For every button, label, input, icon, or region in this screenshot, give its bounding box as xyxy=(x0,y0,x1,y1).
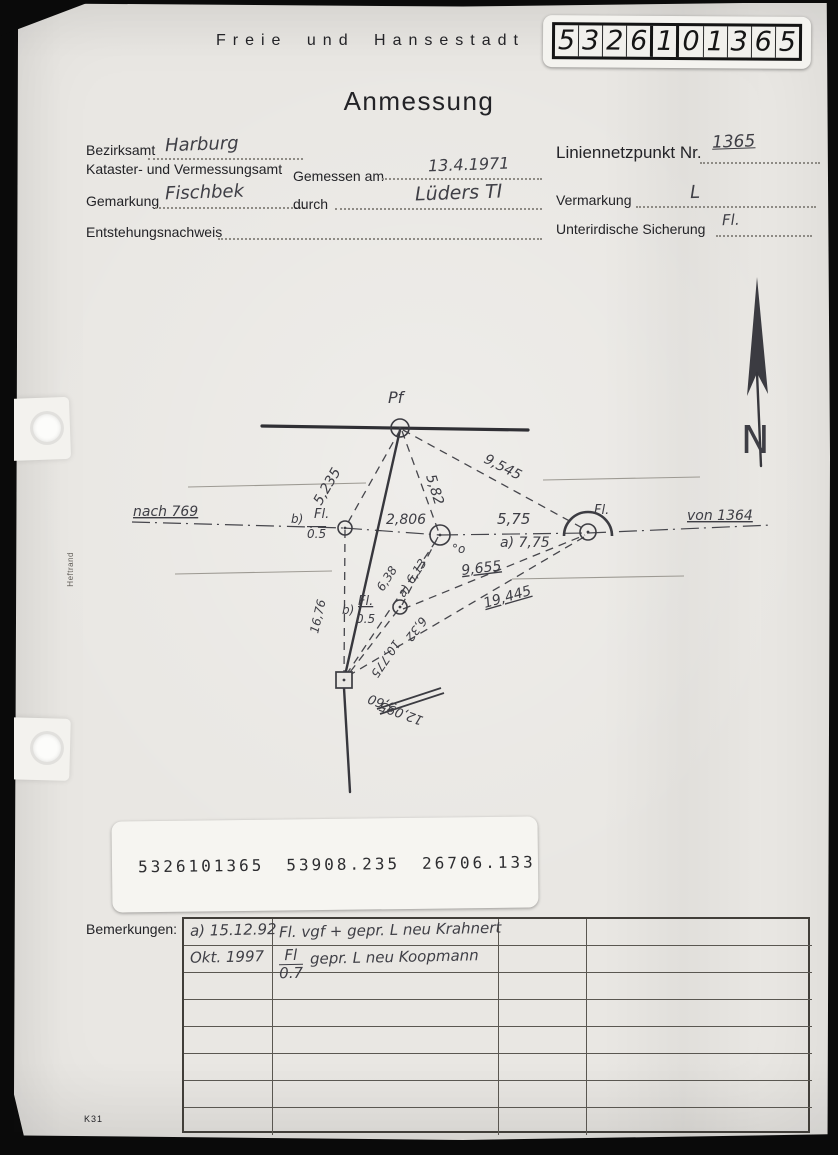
sticker-digit: 3 xyxy=(579,25,603,56)
bemerkungen-cell xyxy=(273,1000,499,1027)
bemerkungen-cell xyxy=(499,1108,587,1135)
bemerkungen-cell xyxy=(273,1054,499,1081)
measurement-label: nach 769 xyxy=(133,504,198,520)
measurement-label: 0.5 xyxy=(307,527,326,541)
measurement-label: °o xyxy=(452,542,465,556)
point-number-sticker: 5326101365 xyxy=(543,15,811,69)
bemerkungen-cell xyxy=(499,1000,587,1027)
measurement-label: 16,76 xyxy=(307,598,328,635)
scan-edge-bottom xyxy=(0,1140,838,1155)
measurement-label: b) xyxy=(291,512,303,526)
entstehungsnachweis-label: Entstehungsnachweis xyxy=(86,224,222,240)
entstehungsnachweis-rule xyxy=(218,226,542,240)
boundary-line xyxy=(344,528,440,535)
survey-point-dot xyxy=(343,679,346,682)
bemerkungen-cell xyxy=(273,1027,499,1054)
bemerkungen-cell xyxy=(499,946,587,973)
point-id: 5326101365 xyxy=(138,856,265,877)
measurement-label: b) xyxy=(342,603,354,617)
measurement-label: 5,82 xyxy=(422,472,446,507)
bezirksamt-label: Bezirksamt xyxy=(86,142,155,158)
vermarkung-value: L xyxy=(690,182,701,203)
survey-point-dot xyxy=(587,531,590,534)
agency-header: Freie und Hansestadt H xyxy=(216,32,563,50)
bemerkungen-cell xyxy=(184,973,273,1000)
bemerkungen-cell xyxy=(499,973,587,1000)
bemerkungen-cell xyxy=(499,1027,587,1054)
north-letter: N xyxy=(741,418,769,462)
coordinate-line: 532610136553908.23526706.133 xyxy=(138,852,558,876)
bemerkung-text: gepr. L neu Koopmann xyxy=(310,946,479,968)
bemerkungen-cell xyxy=(587,1054,812,1081)
sticker-digit: 0 xyxy=(679,26,703,57)
bemerkung-date: Okt. 1997 xyxy=(190,947,264,967)
survey-point-dot xyxy=(344,527,347,530)
heftrand-note: Heftrand xyxy=(66,552,75,587)
bemerkungen-cell xyxy=(273,1081,499,1108)
bemerkungen-cell xyxy=(184,1027,273,1054)
bezirksamt-value: Harburg xyxy=(165,133,239,157)
scan-edge-top xyxy=(0,0,838,3)
amt-label: Kataster- und Vermessungsamt xyxy=(86,161,282,177)
coordinate-x: 53908.235 xyxy=(286,854,400,874)
edge-line xyxy=(175,571,332,574)
gemarkung-value: Fischbek xyxy=(165,181,245,205)
edge-line xyxy=(543,477,700,480)
measurement-label: 2,806 xyxy=(386,512,426,528)
coordinate-y: 26706.133 xyxy=(422,852,536,872)
survey-point-dot xyxy=(399,606,402,609)
bemerkungen-cell: Fl. vgf + gepr. L neu Krahnert xyxy=(273,919,499,946)
bemerkungen-cell: Okt. 1997 xyxy=(184,946,273,973)
point-number-digit-box: 5326101365 xyxy=(552,22,802,61)
measurement-label: Fl. xyxy=(314,507,329,522)
scan-edge-right xyxy=(830,0,838,1155)
sticker-digit: 6 xyxy=(752,27,776,58)
survey-point-dot xyxy=(399,427,402,430)
vermarkung-rule xyxy=(636,194,816,208)
measurement-label: Fl. xyxy=(358,594,373,609)
measurement-label: 5,75 xyxy=(497,510,530,528)
sticker-digit: 1 xyxy=(703,26,727,57)
measurement-label: a) 7,75 xyxy=(500,535,550,551)
sticker-digit: 3 xyxy=(728,26,752,57)
bemerkungen-table: a) 15.12.92Fl. vgf + gepr. L neu Krahner… xyxy=(182,917,810,1133)
bemerkungen-cell xyxy=(273,1108,499,1135)
bemerkungen-cell xyxy=(499,1054,587,1081)
boundary-line xyxy=(588,525,772,533)
durch-value: Lüders TI xyxy=(415,180,503,205)
sticker-digit: 1 xyxy=(653,26,679,57)
bemerkungen-cell xyxy=(587,1081,812,1108)
sticker-digit: 6 xyxy=(627,26,653,57)
gemessen-am-value: 13.4.1971 xyxy=(428,154,510,176)
bemerkungen-cell xyxy=(184,1054,273,1081)
bemerkungen-cell xyxy=(273,973,499,1000)
bemerkung-text: Fl. vgf + gepr. L neu Krahnert xyxy=(279,919,502,942)
scanned-anmessung-form: Pfnach 769von 1364b)Fl.0.52,8065,75a) 7,… xyxy=(0,0,838,1155)
baseline xyxy=(262,426,528,430)
measurement-label: Pf xyxy=(388,388,406,407)
bemerkungen-cell xyxy=(184,1081,273,1108)
bemerkung-fraction: Fl0.7 xyxy=(279,948,304,981)
measurement-label: 19,445 xyxy=(482,583,534,612)
coordinate-sticker: 532610136553908.23526706.133 xyxy=(111,816,538,912)
edge-line xyxy=(512,576,684,579)
measurement-label: 5,235 xyxy=(311,465,345,508)
measurement-label: Fl. xyxy=(594,503,609,518)
liniennetzpunkt-value: 1365 xyxy=(712,131,756,152)
bemerkungen-cell xyxy=(587,1027,812,1054)
measurement-label: 9,545 xyxy=(481,451,524,483)
bemerkungen-cell xyxy=(499,919,587,946)
measurement-label: 0.5 xyxy=(356,612,375,626)
form-title: Anmessung xyxy=(0,86,838,117)
bemerkungen-cell: Fl0.7gepr. L neu Koopmann xyxy=(273,946,499,973)
vermarkung-label: Vermarkung xyxy=(556,192,631,208)
gemessen-am-label: Gemessen am xyxy=(293,168,384,184)
unterirdische-sicherung-label: Unterirdische Sicherung xyxy=(556,221,705,237)
sticker-digit: 5 xyxy=(776,27,799,58)
bemerkungen-label: Bemerkungen: xyxy=(86,921,177,937)
sticker-digit: 2 xyxy=(603,25,627,56)
bemerkungen-cell xyxy=(587,973,812,1000)
gemarkung-label: Gemarkung xyxy=(86,193,159,209)
liniennetzpunkt-label: Liniennetzpunkt Nr. xyxy=(556,143,702,163)
measurement-label: 6,32 xyxy=(403,614,430,644)
sticker-digit: 5 xyxy=(555,25,579,56)
measurement-label: 10,775 xyxy=(368,637,403,680)
edge-line xyxy=(188,483,366,487)
bemerkungen-cell xyxy=(587,1108,812,1135)
bemerkungen-cell xyxy=(499,1081,587,1108)
bemerkungen-cell xyxy=(587,919,812,946)
measurement-baseline xyxy=(344,688,350,792)
bemerkungen-cell xyxy=(184,1108,273,1135)
bemerkungen-cell xyxy=(587,946,812,973)
bemerkungen-cell xyxy=(184,1000,273,1027)
survey-point-dot xyxy=(439,534,442,537)
bemerkungen-cell xyxy=(587,1000,812,1027)
unterirdische-sicherung-value: Fl. xyxy=(722,211,740,230)
measurement-label: von 1364 xyxy=(687,508,753,524)
form-code: K31 xyxy=(84,1114,103,1124)
measurement-label: 9,655 xyxy=(461,558,503,579)
durch-label: durch xyxy=(293,196,328,212)
bemerkung-date: a) 15.12.92 xyxy=(190,920,277,940)
bemerkungen-cell: a) 15.12.92 xyxy=(184,919,273,946)
scan-edge-left xyxy=(0,0,14,1155)
measurement-label: a) 6,13 xyxy=(395,556,430,599)
